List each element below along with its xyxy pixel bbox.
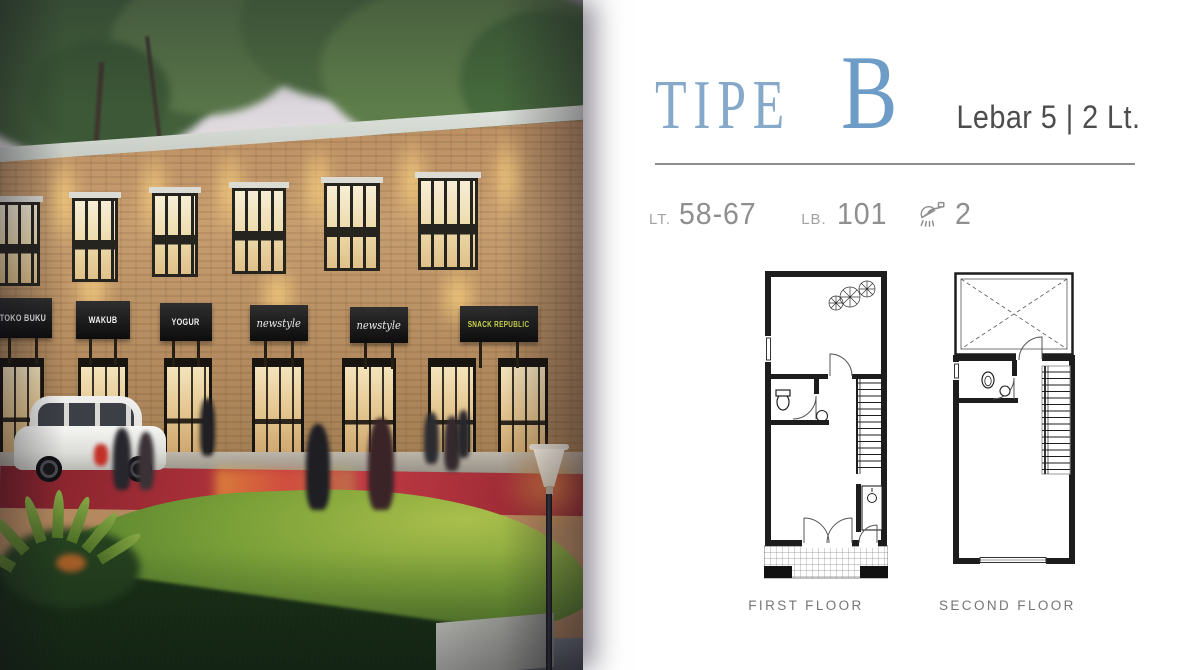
first-floor-plan bbox=[764, 270, 888, 590]
specs-row: LT. 58-67 LB. 101 2 bbox=[649, 196, 974, 233]
type-title: TIPE bbox=[655, 71, 791, 141]
upper-window bbox=[418, 178, 478, 270]
upper-window bbox=[72, 198, 118, 282]
shop-sign-label: newstyle bbox=[357, 319, 401, 332]
shop-sign-label: WAKUB bbox=[89, 315, 118, 325]
foreground-plants bbox=[0, 468, 150, 618]
bathroom-count: 2 bbox=[955, 196, 972, 232]
upper-window bbox=[324, 183, 380, 271]
shop-sign: TOKO BUKU bbox=[0, 298, 52, 338]
type-subtitle: Lebar 5 | 2 Lt. bbox=[956, 99, 1140, 136]
person-silhouette bbox=[424, 412, 439, 464]
shop-sign: SNACK REPUBLIC bbox=[460, 306, 538, 342]
land-area-label: LT. bbox=[649, 211, 671, 228]
info-panel: TIPE B Lebar 5 | 2 Lt. LT. 58-67 LB. 101 bbox=[583, 0, 1200, 670]
shop-sign-label: newstyle bbox=[257, 317, 301, 330]
planter-box bbox=[436, 613, 554, 670]
second-floor-label: SECOND FLOOR bbox=[939, 598, 1063, 613]
land-area-value: 58-67 bbox=[679, 196, 757, 232]
person-silhouette bbox=[200, 398, 215, 456]
second-floor-plan bbox=[952, 270, 1076, 572]
shower-icon bbox=[915, 200, 947, 237]
shop-sign: newstyle bbox=[350, 307, 408, 343]
building-rendering-photo: TOKO BUKU WAKUB YOGUR newstyle newstyle … bbox=[0, 0, 583, 670]
shop-sign: WAKUB bbox=[76, 301, 130, 339]
shop-sign-label: SNACK REPUBLIC bbox=[468, 320, 530, 329]
building-area-label: LB. bbox=[801, 211, 827, 228]
street-lamp-pole bbox=[546, 494, 552, 670]
upper-window bbox=[232, 188, 286, 274]
person-silhouette bbox=[306, 424, 330, 510]
building-area-value: 101 bbox=[837, 196, 887, 232]
storefront-door bbox=[252, 358, 304, 465]
uplight-glow bbox=[490, 128, 526, 228]
shop-sign-label: YOGUR bbox=[172, 317, 200, 327]
upper-window bbox=[0, 202, 40, 286]
first-floor-label: FIRST FLOOR bbox=[744, 598, 868, 613]
shop-sign-label: TOKO BUKU bbox=[0, 313, 46, 323]
type-letter: B bbox=[841, 44, 898, 142]
red-light-accent bbox=[94, 444, 108, 466]
shop-sign: newstyle bbox=[250, 305, 308, 341]
title-row: TIPE B Lebar 5 | 2 Lt. bbox=[655, 44, 1140, 142]
person-silhouette bbox=[457, 410, 470, 458]
person-silhouette bbox=[368, 418, 394, 510]
divider-line bbox=[655, 163, 1135, 165]
shop-sign: YOGUR bbox=[160, 303, 212, 341]
upper-window bbox=[152, 193, 198, 277]
brochure-slide: TOKO BUKU WAKUB YOGUR newstyle newstyle … bbox=[0, 0, 1200, 670]
